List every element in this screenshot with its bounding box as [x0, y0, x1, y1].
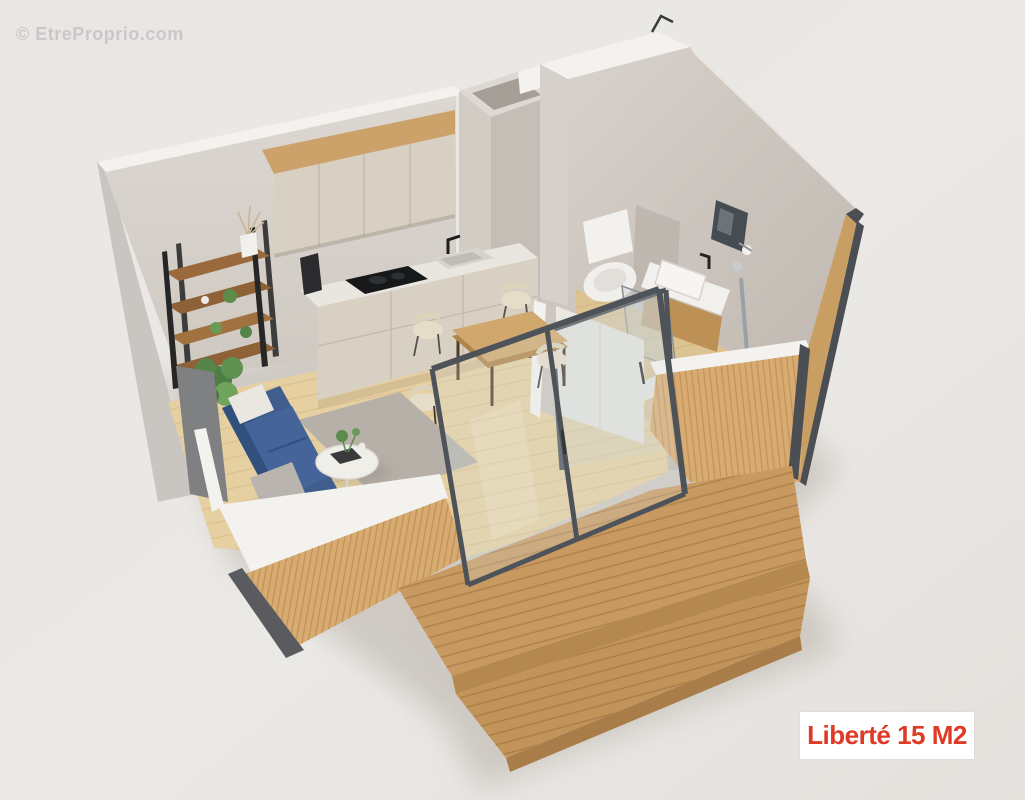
shelf-plant [210, 322, 222, 334]
screenshot-root: © EtreProprio.com Liberté 15 M2 [0, 0, 1025, 800]
shelf-plant [240, 326, 252, 338]
floorplan-3d-render [0, 0, 1025, 800]
hob-ring [369, 276, 387, 284]
shower-head [732, 261, 742, 271]
watermark: © EtreProprio.com [16, 24, 184, 45]
size-badge: Liberté 15 M2 [800, 712, 974, 759]
shelf-object [201, 296, 209, 304]
size-badge-label: Liberté 15 M2 [807, 720, 967, 751]
hob-ring [391, 273, 405, 280]
bath-wall-left-face [540, 64, 568, 308]
white-pot [240, 232, 258, 258]
shelf-plant [223, 289, 237, 303]
